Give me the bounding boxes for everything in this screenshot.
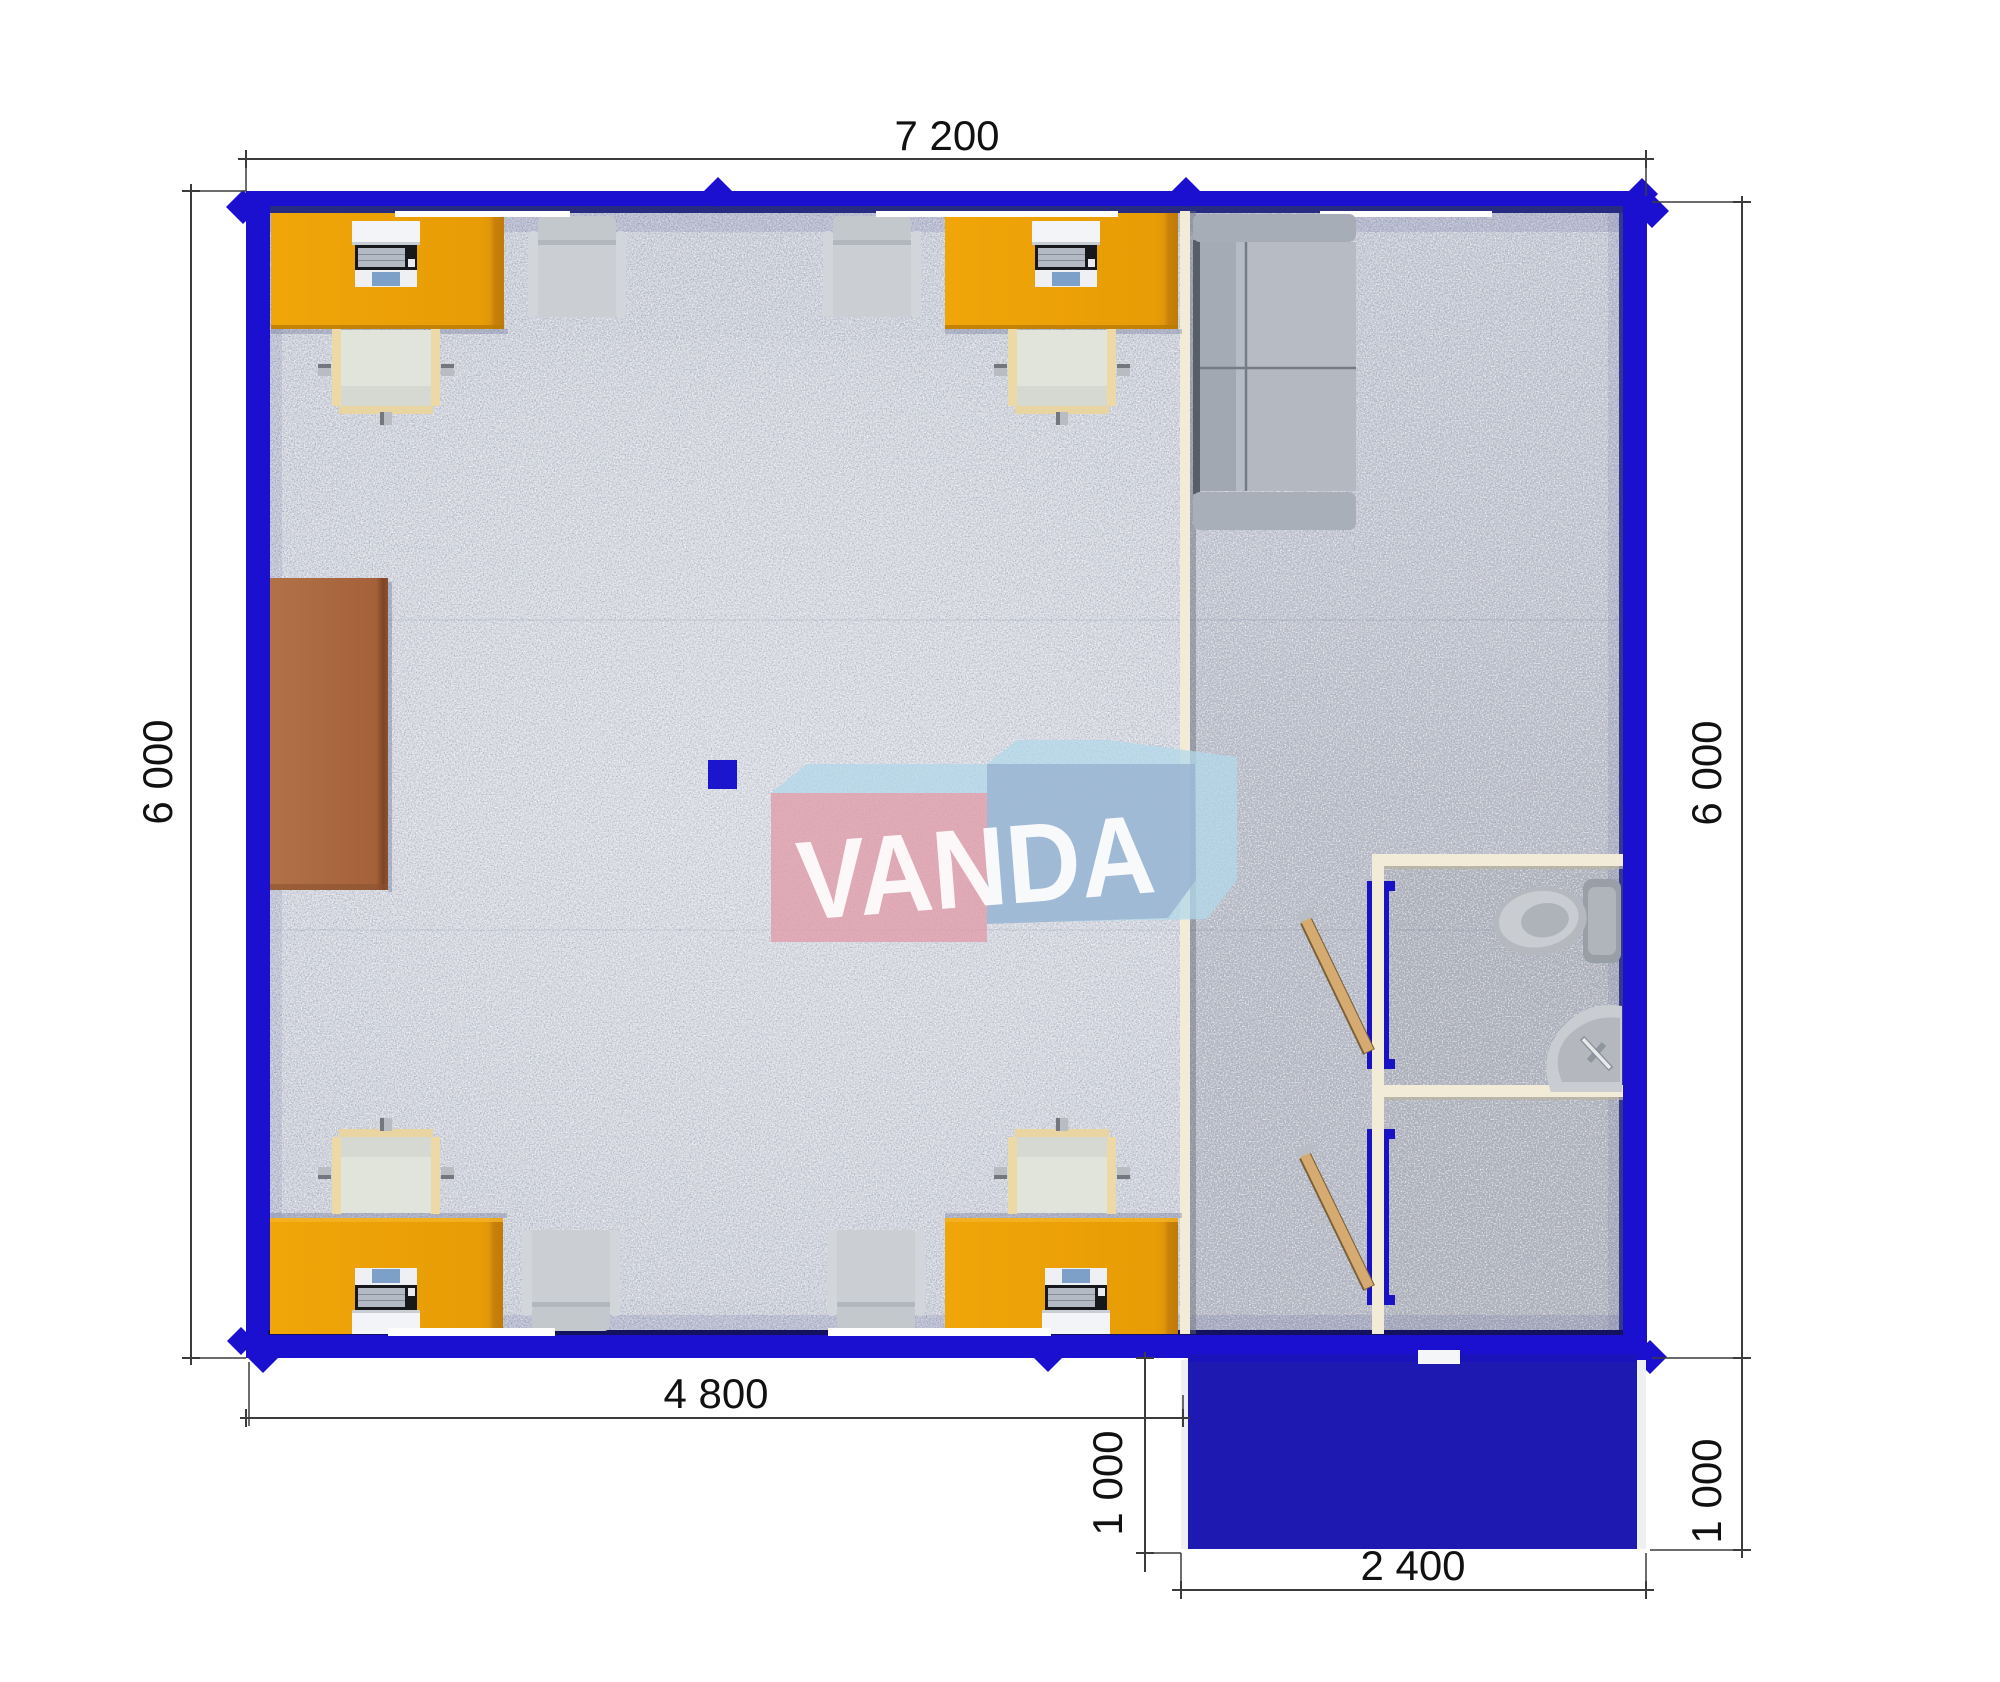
svg-text:6 000: 6 000 <box>1683 720 1730 825</box>
svg-text:1 000: 1 000 <box>1683 1438 1730 1543</box>
svg-text:7 200: 7 200 <box>894 112 999 159</box>
svg-text:2 400: 2 400 <box>1360 1542 1465 1589</box>
svg-text:4 800: 4 800 <box>663 1370 768 1417</box>
svg-text:6 000: 6 000 <box>134 719 181 824</box>
svg-text:1 000: 1 000 <box>1084 1430 1131 1535</box>
